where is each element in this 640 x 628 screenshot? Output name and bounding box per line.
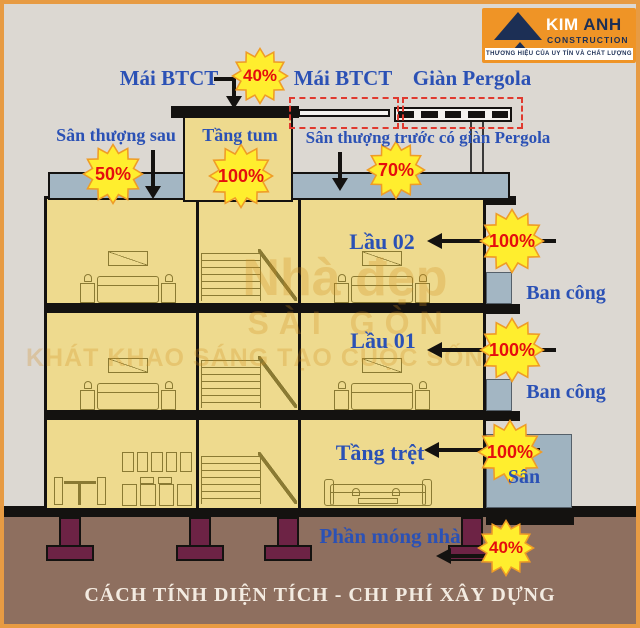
arrow-foundation-head [436, 548, 451, 564]
building-cost-diagram: Nhà đẹp SÀI GÒN KHÁT KHAO SÁNG TẠO CUỘC … [0, 0, 640, 628]
sofa-armrest [422, 479, 432, 506]
furniture-bed [80, 251, 176, 303]
bed [351, 383, 413, 410]
arrow-terrace-rear [151, 150, 155, 188]
kitchen-lower-cabinets [122, 484, 192, 506]
logo-tagline-strip: THƯƠNG HIỆU CỦA UY TÍN VÀ CHẤT LƯỢNG [485, 48, 633, 60]
nightstand [161, 390, 176, 410]
nightstand [415, 390, 430, 410]
label-terrace-front: Sân thượng trước có giàn Pergola [306, 128, 551, 148]
dining-table-leg [78, 484, 81, 505]
logo-name: KIM ANH [546, 15, 622, 35]
pergola-callout-box [402, 97, 523, 129]
arrow-floor2-head [427, 233, 442, 249]
label-foundation: Phần móng nhà [319, 524, 460, 549]
coffee-table [358, 498, 398, 504]
kitchen-sink [158, 477, 172, 484]
balcony-parapet [486, 272, 512, 304]
label-floor2: Lầu 02 [349, 229, 414, 255]
logo-triangle-icon [494, 12, 542, 40]
sofa-cushion-line [331, 492, 425, 493]
picture-frame [108, 251, 148, 266]
nightstand [161, 283, 176, 303]
kitchen-sink [140, 477, 154, 484]
watermark-line1: Nhà đẹp [242, 248, 447, 308]
ground-slab-step [486, 506, 574, 525]
arrow-terrace-front-head [332, 178, 348, 191]
label-roof-left: Mái BTCT [120, 66, 219, 91]
dining-chair [97, 477, 106, 505]
balcony-parapet [486, 379, 512, 411]
balcony-slab [484, 304, 520, 314]
percent-badge-floor2: 100% [479, 208, 545, 274]
arrow-roof-head [226, 96, 242, 109]
label-tum: Tầng tum [202, 125, 278, 146]
sofa-armrest [324, 479, 334, 506]
roof-callout-box [289, 97, 399, 129]
label-pergola: Giàn Pergola [413, 66, 531, 91]
lamp-icon [419, 381, 427, 389]
label-yard: Sân [508, 466, 540, 489]
lamp-icon [338, 381, 346, 389]
caption-title: CÁCH TÍNH DIỆN TÍCH - CHI PHÍ XÂY DỰNG [84, 584, 555, 607]
label-terrace-rear: Sân thượng sau [56, 125, 176, 146]
lamp-icon [165, 381, 173, 389]
footing-base [176, 545, 224, 561]
bed [97, 276, 159, 303]
nightstand [334, 390, 349, 410]
side-lamp [392, 488, 400, 496]
label-balcony-upper: Ban công [526, 282, 605, 305]
bed [97, 383, 159, 410]
label-balcony-lower: Ban công [526, 381, 605, 404]
nightstand [80, 390, 95, 410]
label-roof-mid: Mái BTCT [294, 66, 393, 91]
arrow-terrace-rear-head [145, 186, 161, 199]
dining-chair [54, 477, 63, 505]
logo-subtitle: CONSTRUCTION [547, 35, 629, 45]
kim-anh-logo: KIM ANH CONSTRUCTION THƯƠNG HIỆU CỦA UY … [482, 8, 636, 63]
arrow-ground-head [424, 442, 439, 458]
side-lamp [352, 488, 360, 496]
label-ground-floor: Tầng trệt [336, 440, 425, 466]
arrow-terrace-front [338, 152, 342, 180]
arrow-floor1-head [427, 342, 442, 358]
footing-base [264, 545, 312, 561]
lamp-icon [84, 381, 92, 389]
arrow-roof-line [232, 77, 236, 98]
footing-base [46, 545, 94, 561]
balcony-slab [484, 411, 520, 421]
kitchen-upper-cabinets [122, 452, 192, 472]
lamp-icon [165, 274, 173, 282]
slab-floor1 [44, 410, 486, 420]
nightstand [80, 283, 95, 303]
label-floor1: Lầu 01 [350, 328, 415, 354]
staircase [201, 452, 297, 506]
lamp-icon [84, 274, 92, 282]
percent-badge-floor1: 100% [479, 317, 545, 383]
